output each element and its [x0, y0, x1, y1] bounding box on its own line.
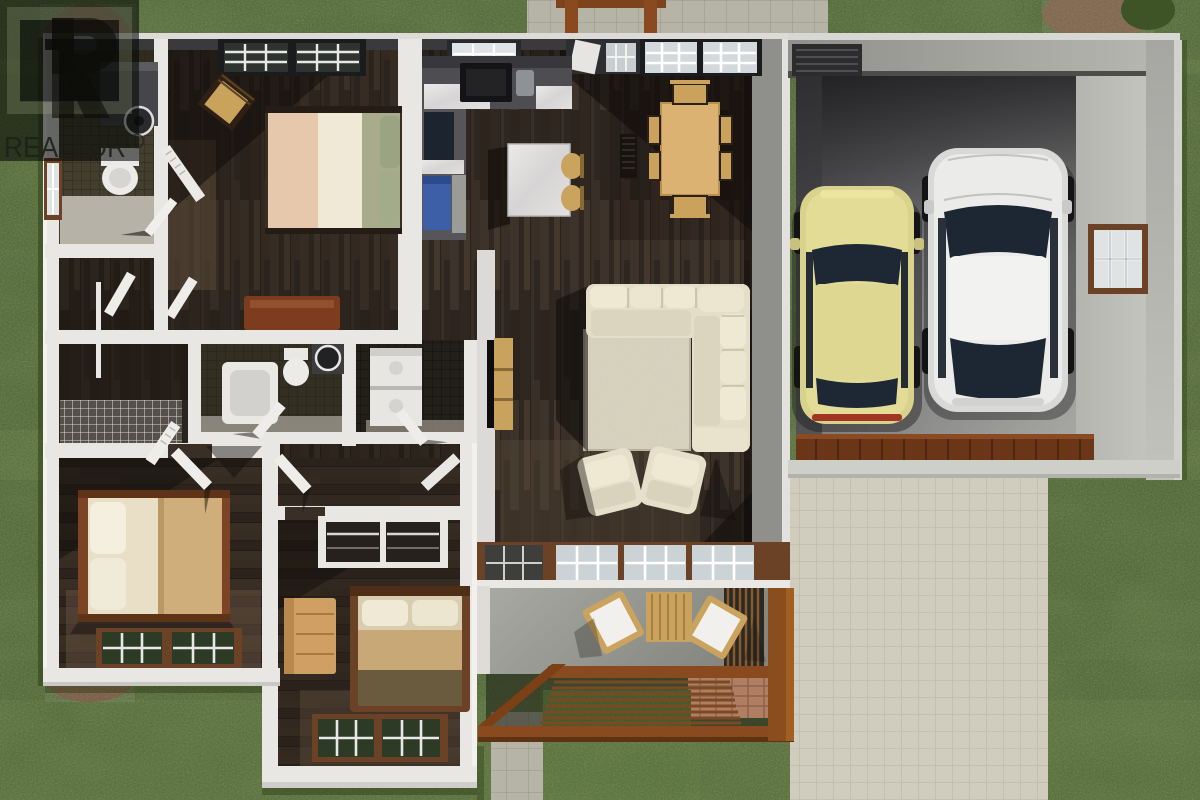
svg-text:REALTOR: REALTOR [4, 132, 126, 164]
svg-text:R: R [134, 137, 141, 147]
